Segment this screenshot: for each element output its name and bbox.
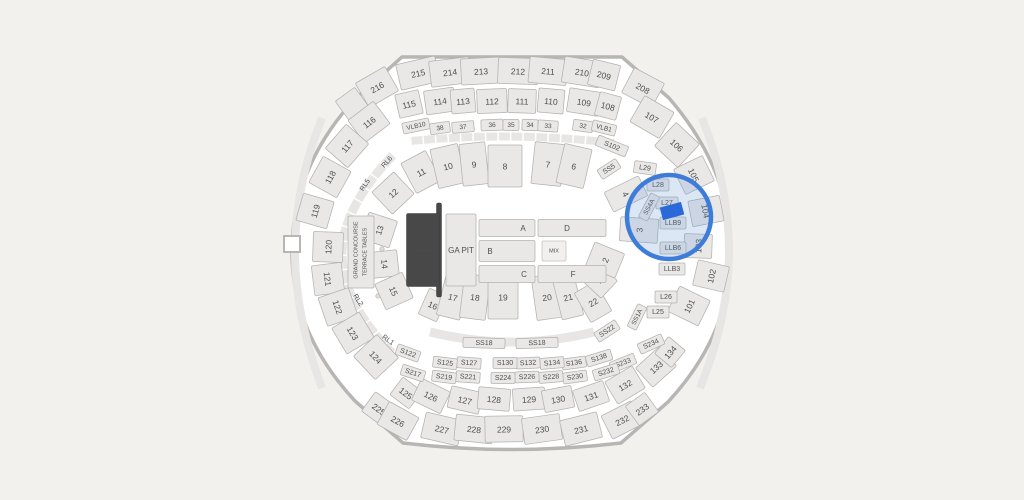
section-label: STAGE	[416, 248, 431, 253]
section-36[interactable]: 36	[481, 119, 503, 131]
section-32[interactable]: 32	[572, 119, 593, 133]
section-label: A	[520, 224, 526, 233]
section-label: L25	[652, 309, 664, 316]
section-s228[interactable]: S228	[539, 370, 564, 383]
section-s134[interactable]: S134	[540, 356, 565, 369]
section-ss18[interactable]: SS18	[516, 337, 558, 348]
section-label: 37	[459, 124, 467, 132]
section-llb3[interactable]: LLB3	[659, 263, 685, 275]
section-a[interactable]: A	[479, 220, 535, 237]
highlight-layer	[627, 175, 711, 259]
section-35[interactable]: 35	[503, 120, 519, 131]
section-label: 113	[456, 96, 471, 107]
section-110[interactable]: 110	[537, 88, 565, 114]
section-s226[interactable]: S226	[515, 371, 539, 383]
left-vomitory-notch	[284, 236, 300, 252]
section-label: 38	[436, 124, 445, 132]
section-label: 230	[534, 424, 550, 436]
section-label: S221	[460, 373, 477, 381]
section-label: 19	[498, 293, 508, 303]
section-111[interactable]: 111	[508, 89, 537, 114]
section-label: S224	[495, 375, 511, 382]
section-label: 214	[442, 67, 458, 79]
section-label: 14	[379, 259, 390, 270]
section-b[interactable]: B	[479, 241, 535, 262]
section-label: 35	[507, 122, 515, 129]
section-label: S130	[497, 360, 513, 367]
section-d[interactable]: D	[538, 220, 606, 237]
section-shape	[348, 216, 374, 288]
section-label: S228	[543, 373, 560, 381]
section-label: B	[487, 247, 492, 256]
section-112[interactable]: 112	[477, 88, 508, 113]
section-label: 129	[522, 394, 537, 405]
section-label: LLB3	[664, 266, 680, 273]
section-label: S226	[519, 374, 536, 382]
section-c[interactable]: C	[479, 266, 535, 283]
section-s130[interactable]: S130	[493, 358, 517, 369]
section-label: 128	[486, 394, 501, 405]
section-230[interactable]: 230	[521, 413, 562, 444]
section-label: 228	[466, 424, 481, 435]
section-229[interactable]: 229	[485, 416, 523, 443]
section-129[interactable]: 129	[512, 387, 545, 411]
section-l25[interactable]: L25	[647, 306, 669, 318]
section-label: 211	[541, 66, 556, 77]
section-label: 20	[542, 292, 553, 303]
section-label: S127	[461, 359, 478, 367]
section-label: 114	[433, 96, 448, 108]
section-38[interactable]: 38	[429, 121, 450, 135]
section-label: 36	[488, 122, 496, 129]
section-115[interactable]: 115	[395, 90, 424, 119]
section-s127[interactable]: S127	[457, 357, 482, 370]
section-terrace-tables[interactable]: TERRACE TABLES	[363, 227, 369, 276]
section-label: MIX	[549, 249, 559, 255]
section-label: 8	[503, 162, 508, 172]
section-113[interactable]: 113	[450, 88, 476, 114]
section-grand-concourse[interactable]: GRAND CONCOURSE	[354, 221, 360, 278]
section-9[interactable]: 9	[459, 142, 489, 186]
section-label: 32	[579, 123, 588, 131]
section-label: 18	[470, 292, 481, 303]
section-label: GRAND CONCOURSE	[354, 221, 360, 278]
section-213[interactable]: 213	[460, 57, 501, 85]
section-ss18[interactable]: SS18	[463, 337, 505, 348]
section-label: F	[571, 270, 576, 279]
arena-seating-map: 2162152142132122112102092081151141131121…	[0, 0, 1024, 500]
section-label: GA PIT	[448, 246, 474, 255]
section-120[interactable]: 120	[312, 231, 343, 262]
section-14[interactable]: 14	[371, 250, 400, 279]
section-label: 121	[322, 271, 334, 287]
section-label: 111	[515, 96, 529, 106]
section-s132[interactable]: S132	[516, 357, 541, 369]
section-label: TERRACE TABLES	[363, 227, 369, 276]
section-s221[interactable]: S221	[456, 371, 481, 384]
section-label: SS18	[475, 340, 492, 348]
section-label: 33	[544, 123, 552, 131]
section-ga-pit[interactable]: GA PIT	[446, 214, 476, 286]
section-label: L26	[660, 294, 672, 301]
section-label: 120	[323, 239, 333, 254]
section-s224[interactable]: S224	[491, 373, 515, 384]
section-label: D	[564, 224, 570, 233]
section-label: 212	[511, 66, 526, 76]
section-label: 229	[497, 424, 512, 434]
section-37[interactable]: 37	[452, 121, 475, 134]
section-l29[interactable]: L29	[633, 161, 656, 176]
section-8[interactable]: 8	[488, 145, 522, 187]
section-label: 112	[485, 96, 499, 106]
section-f[interactable]: F	[538, 266, 606, 283]
section-34[interactable]: 34	[522, 119, 538, 131]
section-33[interactable]: 33	[538, 120, 559, 132]
section-128[interactable]: 128	[477, 387, 511, 412]
section-label: 213	[474, 66, 489, 77]
section-stage[interactable]: STAGE	[407, 214, 440, 287]
section-label: C	[521, 270, 527, 279]
section-label: SS18	[528, 340, 545, 348]
section-l26[interactable]: L26	[655, 291, 677, 303]
section-label: S132	[520, 360, 537, 368]
section-label: S134	[544, 359, 561, 367]
section-label: 34	[526, 122, 534, 129]
section-mix[interactable]: MIX	[542, 241, 566, 261]
section-label: 110	[544, 96, 559, 107]
seating-chart-page: 2162152142132122112102092081151141131121…	[0, 0, 1024, 500]
